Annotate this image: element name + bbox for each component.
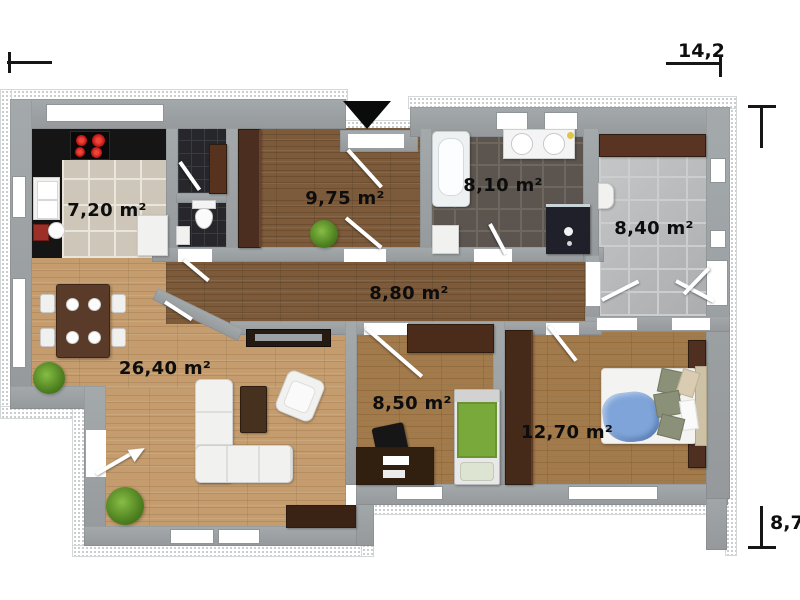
floor-plan: 7,20 m² 9,75 m² 8,10 m² 8,40 m² 8,80 m² …: [0, 0, 800, 600]
toilet: [192, 200, 218, 230]
room-label-hall: 9,75 m²: [290, 188, 400, 209]
dining-chair: [40, 294, 55, 313]
window-living-left: [12, 278, 26, 368]
window-storageroom-right-2: [710, 230, 726, 248]
wc-sink: [176, 226, 190, 245]
fridge: [137, 215, 168, 256]
dimension-tick-right-bottom: [748, 546, 776, 549]
dining-chair: [40, 328, 55, 347]
smallbedroom-wardrobe: [407, 324, 494, 353]
dimension-line-top-left: [7, 61, 52, 64]
coffee-table: [240, 386, 267, 433]
closet-cabinet: [209, 144, 227, 194]
door-storageroom-bottom-1: [597, 318, 637, 330]
hatch-bottom-living: [72, 545, 374, 557]
window-bedroom-bottom: [568, 486, 658, 500]
pillow: [460, 462, 494, 481]
room-label-bathroom: 8,10 m²: [448, 175, 558, 196]
window-kitchen-left: [12, 176, 26, 218]
washing-machine: [432, 225, 459, 254]
door-entrance: [348, 134, 404, 148]
window-kitchen-top: [46, 104, 164, 122]
terrace-door-arrow: [96, 440, 166, 480]
room-label-small-bedroom: 8,50 m²: [357, 393, 467, 414]
shower: [546, 204, 590, 254]
dimension-line-right-bottom: [760, 506, 763, 548]
room-label-kitchen: 7,20 m²: [52, 200, 162, 221]
dimension-line-top-right: [666, 62, 722, 65]
dimension-tick-top-right: [719, 55, 722, 77]
door-corridor-storageroom: [586, 262, 600, 306]
room-label-bedroom: 12,70 m²: [507, 422, 627, 443]
storageroom-wardrobe: [599, 134, 706, 157]
wall-step-bottom: [356, 498, 374, 546]
sideboard: [286, 505, 356, 528]
window-living-bottom-1: [170, 529, 214, 544]
kitchen-small-appliance: [33, 224, 49, 241]
plant-living-1: [33, 362, 65, 394]
desk: [356, 447, 434, 485]
window-living-bottom-2: [218, 529, 260, 544]
dimension-tick-top-left: [8, 52, 11, 73]
plant-living-2: [106, 487, 144, 525]
plant-hall: [310, 220, 338, 248]
dining-chair: [111, 294, 126, 313]
stove: [70, 131, 110, 160]
double-sink-vanity: [503, 129, 575, 159]
room-label-storage-room: 8,40 m²: [599, 218, 709, 239]
entrance-arrow-icon: [343, 101, 391, 129]
dimension-line-right-top: [760, 105, 763, 148]
tv-screen: [255, 334, 322, 341]
wall-storage-hall: [226, 128, 238, 259]
kitchen-plate: [48, 222, 65, 239]
room-label-corridor: 8,80 m²: [354, 283, 464, 304]
room-label-living-room: 26,40 m²: [105, 358, 225, 379]
dimension-width-label: 14,2: [678, 40, 725, 62]
window-bathroom-top-1: [496, 112, 528, 130]
window-smallbedroom-bottom: [396, 486, 443, 500]
storageroom-sink: [598, 183, 614, 209]
window-bathroom-top-2: [544, 112, 578, 130]
dimension-height-label: 8,7: [770, 512, 800, 534]
window-storageroom-right-1: [710, 158, 726, 183]
hall-wardrobe: [238, 129, 261, 248]
wall-hall-bathroom: [420, 128, 432, 259]
bedroom-wardrobe: [505, 330, 533, 485]
door-hall-corridor: [344, 249, 386, 262]
door-storageroom-bottom-2: [672, 318, 710, 330]
tv-sideboard: [246, 329, 331, 347]
dining-chair: [111, 328, 126, 347]
soap-dish: [567, 132, 574, 139]
dining-set: [56, 284, 110, 358]
dining-table: [56, 284, 110, 358]
